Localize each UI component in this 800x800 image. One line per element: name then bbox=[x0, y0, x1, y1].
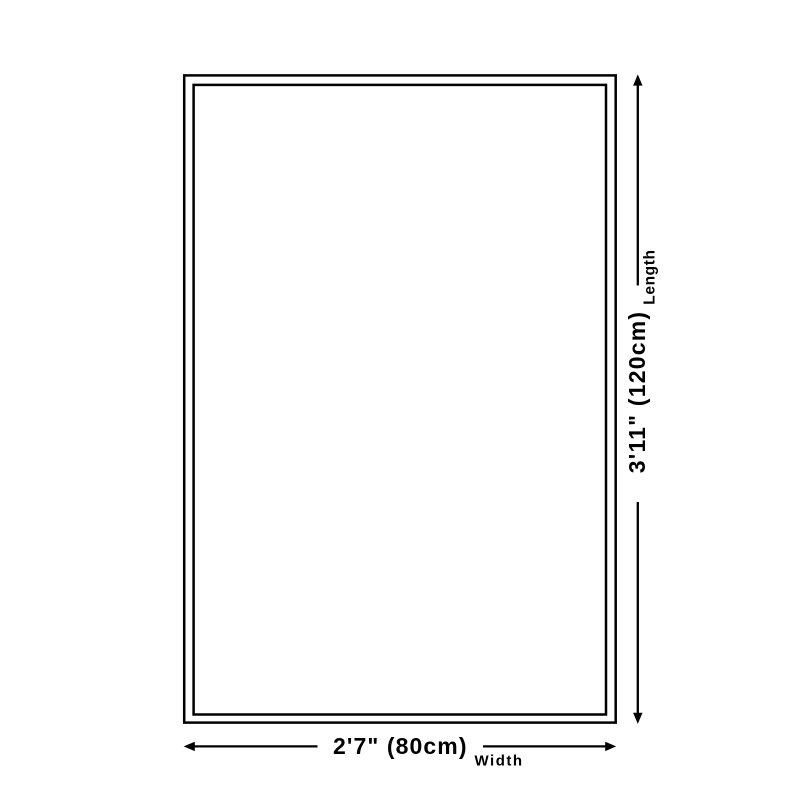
svg-text:Width: Width bbox=[475, 752, 524, 769]
svg-text:3'11" (120cm): 3'11" (120cm) bbox=[624, 311, 650, 473]
svg-text:2'7" (80cm): 2'7" (80cm) bbox=[333, 733, 468, 759]
svg-text:Length: Length bbox=[641, 249, 658, 304]
